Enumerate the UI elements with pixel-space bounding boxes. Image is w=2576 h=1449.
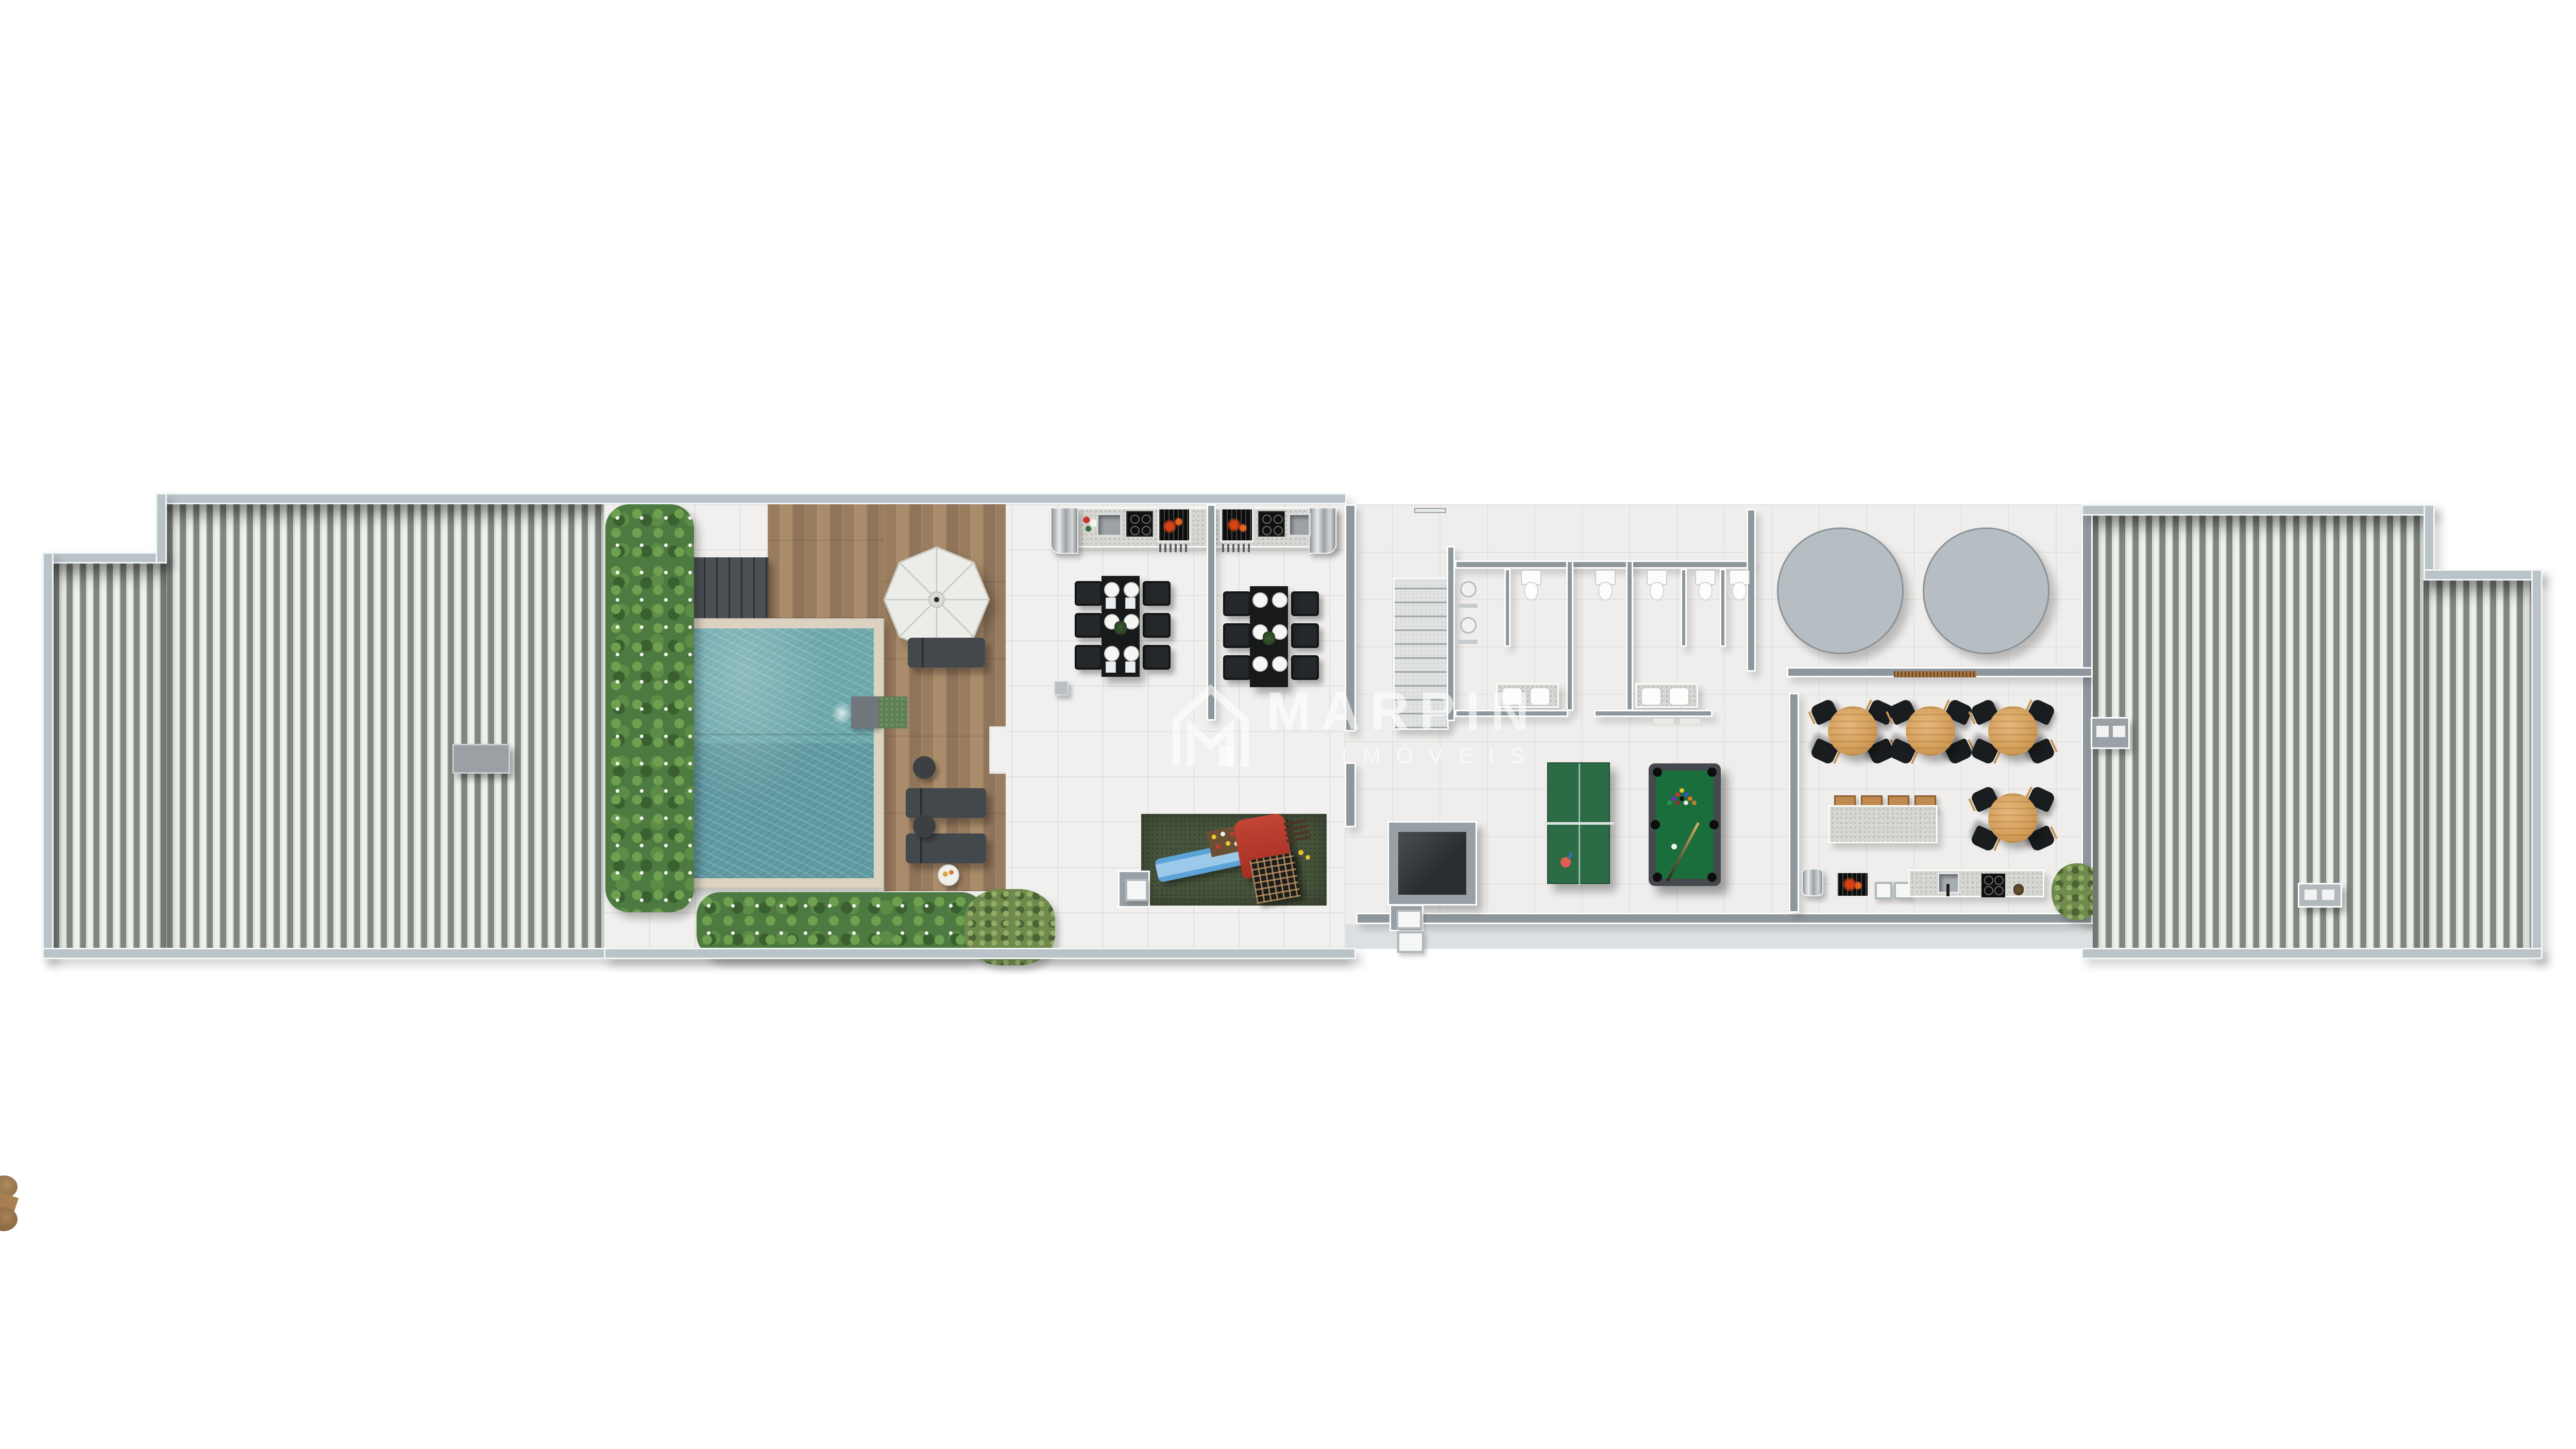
lounger: [906, 833, 986, 863]
stall-wall: [1720, 569, 1726, 647]
flower-dot: [1298, 850, 1303, 855]
bath-bottom-wall: [1455, 710, 1568, 717]
plate: [1272, 656, 1287, 672]
electrical-box: [1125, 879, 1148, 901]
ping-pong-paddle-handle: [1567, 852, 1573, 860]
flower-dot: [1306, 855, 1310, 860]
reservoir-tank: [1923, 527, 2049, 654]
chair: [1291, 655, 1319, 680]
terrace-bottom-wall: [604, 948, 1356, 959]
meter-box-panel: [2091, 717, 2130, 749]
indoor-left-wall: [1345, 504, 1356, 731]
toilet: [1695, 570, 1716, 585]
toilet: [1647, 570, 1667, 585]
plate: [1252, 656, 1268, 672]
floor-cube: [1054, 681, 1069, 695]
kitchen-faucet: [1946, 884, 1950, 896]
pool-splash: [832, 702, 852, 725]
right-bottom-wall: [2081, 948, 2543, 959]
plate: [1252, 592, 1268, 608]
shower-head: [1460, 581, 1477, 598]
stairs: [1393, 577, 1449, 730]
left-roof: [167, 504, 604, 948]
bath-vestibule-wall: [1447, 546, 1455, 721]
pool-waterfall-block: [851, 696, 879, 728]
kitchen-grill: [1836, 871, 1870, 898]
chair: [1075, 581, 1103, 606]
playground-net: [1249, 853, 1301, 904]
plate: [1104, 646, 1120, 661]
meter-window: [2096, 726, 2109, 737]
shower-shelf: [1458, 640, 1478, 644]
left-roof-step-wall: [156, 493, 167, 564]
shower-shelf: [1458, 604, 1478, 608]
indoor-right-wall: [2081, 504, 2093, 924]
electrical-box: [1397, 931, 1424, 953]
bbq-sink-right: [1288, 513, 1311, 537]
pool-lane-seam: [687, 734, 874, 736]
cropped-wood-stool: [0, 1207, 18, 1231]
kitchen-plant: [2013, 884, 2024, 895]
billiard-felt: [1656, 771, 1714, 879]
bath-bottom-wall: [1594, 710, 1713, 717]
left-roof-top-wall-low: [42, 552, 167, 564]
reservoir-tank: [1777, 527, 1904, 654]
bbq-skewers-right: [1222, 544, 1253, 552]
sink: [1502, 687, 1522, 706]
party-vent-slats: [1894, 671, 1976, 677]
chair: [1291, 591, 1319, 616]
bbq-cooktop-right: [1258, 511, 1285, 537]
bath-sink-counter: [1496, 683, 1559, 708]
bath-zone-right-wall: [1747, 509, 1756, 672]
sink: [1641, 687, 1662, 706]
bbq-grill-left: [1157, 507, 1191, 542]
stall-wall: [1681, 569, 1687, 647]
pool-waterfall-moss: [879, 696, 908, 728]
chair: [1143, 613, 1171, 638]
right-roof-top-wall: [2081, 504, 2435, 516]
kitchen-cylinder: [1802, 868, 1823, 896]
bath-mat: [1653, 718, 1674, 725]
snack-table: [938, 864, 959, 886]
playground-ladder: [1283, 817, 1311, 842]
bbq-grill-right: [1220, 507, 1254, 542]
indoor-left-wall-lower: [1345, 762, 1356, 827]
food-dot: [949, 870, 954, 875]
side-table: [913, 815, 936, 838]
ping-pong-table: [1547, 762, 1610, 884]
centerpiece-plant: [1263, 632, 1275, 645]
lounger: [906, 788, 986, 818]
meter-window: [2113, 726, 2125, 737]
stall-wall: [1504, 569, 1511, 647]
island-counter: [1828, 805, 1938, 843]
chair: [1075, 645, 1103, 670]
plate: [1272, 592, 1287, 608]
side-table: [913, 756, 936, 779]
bath-mat: [1680, 718, 1701, 725]
kitchen-counter: [1908, 870, 2044, 897]
bbq-hood-right: [1309, 507, 1336, 554]
bbq-cooktop-left: [1126, 511, 1153, 537]
napkin: [1125, 598, 1136, 609]
indoor-bottom-wall: [1356, 913, 2093, 924]
chair: [1143, 645, 1171, 670]
bbq-hood-left: [1050, 507, 1078, 554]
kitchen-cabinet-door: [1875, 882, 1892, 899]
left-roof-lower: [54, 564, 167, 948]
napkin: [1125, 661, 1136, 673]
utility-room: [1387, 821, 1477, 906]
toilet: [1595, 570, 1616, 585]
right-outer-wall: [2531, 569, 2543, 959]
bath-sink-counter: [1635, 683, 1698, 708]
centerpiece-plant: [1114, 621, 1127, 635]
floor-plan-canvas: MARPIN IMÓVEIS: [0, 0, 2576, 1449]
napkin: [1106, 661, 1116, 673]
shower-head: [1460, 617, 1477, 634]
chair: [1223, 655, 1251, 680]
ping-pong-net: [1545, 822, 1614, 825]
stall-wall-long: [1626, 560, 1633, 711]
vent-window: [2322, 890, 2334, 900]
plate: [1124, 582, 1139, 598]
party-left-wall: [1789, 693, 1799, 913]
round-table: [1906, 706, 1955, 756]
chair: [1291, 623, 1319, 648]
stall-wall-long: [1566, 560, 1573, 711]
bath-top-wall: [1455, 560, 1752, 569]
sink: [1669, 687, 1689, 706]
round-table: [1828, 706, 1877, 756]
deck-notch: [989, 726, 1006, 774]
left-outer-wall: [42, 552, 54, 959]
right-roof-lower: [2424, 581, 2531, 948]
vent-window: [2304, 890, 2317, 900]
chair: [1143, 581, 1171, 606]
indoor-apron: [1345, 924, 2093, 949]
chair: [1223, 591, 1251, 616]
cue-ball: [1671, 844, 1677, 849]
bbq-sink-left: [1096, 513, 1122, 537]
toilet: [1521, 570, 1541, 585]
pool-deck-top: [768, 504, 884, 618]
chair: [1223, 623, 1251, 648]
utility-room-floor: [1398, 832, 1466, 895]
roof-vent-box: [2298, 883, 2342, 908]
right-roof: [2093, 516, 2424, 948]
electrical-box: [1396, 910, 1422, 929]
round-table: [1988, 706, 2038, 756]
toilet: [1729, 570, 1750, 585]
roof-equipment-box: [452, 744, 510, 774]
napkin: [1106, 598, 1116, 609]
vine-hedge-left: [605, 504, 694, 912]
billiard-table: [1649, 763, 1721, 886]
food-dot: [943, 872, 948, 877]
bbq-divider-wall: [1207, 504, 1216, 721]
pool-water: [687, 628, 874, 878]
right-roof-top-wall-low: [2424, 569, 2543, 581]
left-roof-top-wall-high: [156, 493, 1347, 504]
plate: [1104, 582, 1120, 598]
lounger: [908, 638, 985, 668]
entry-door-leaf: [1414, 508, 1446, 513]
round-table: [1988, 793, 2038, 843]
kitchen-cooktop: [1981, 874, 2005, 897]
bbq-skewers-left: [1159, 544, 1190, 552]
plate: [1124, 646, 1139, 661]
chair: [1075, 613, 1103, 638]
sink: [1530, 687, 1550, 706]
